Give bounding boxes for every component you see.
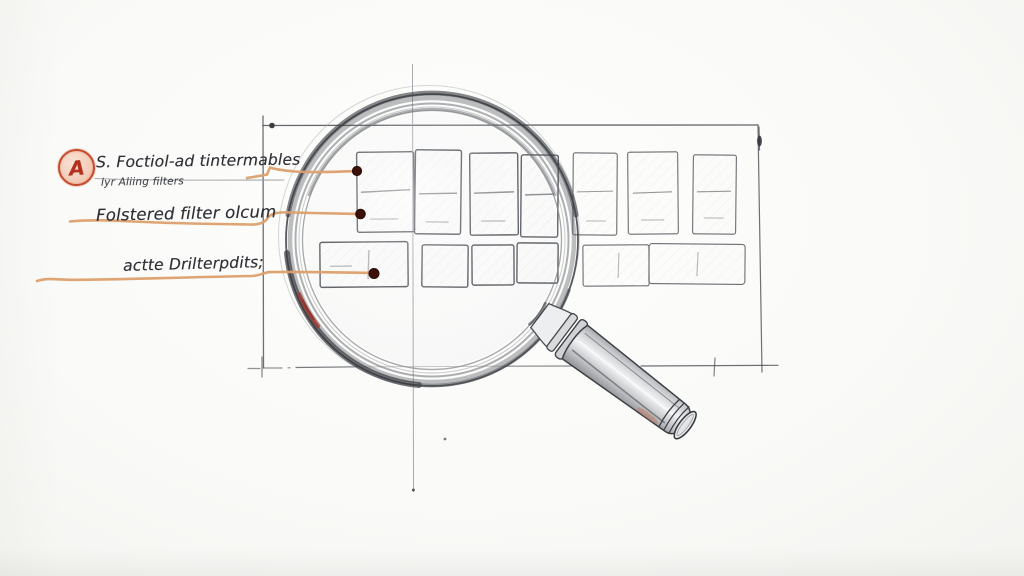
annotation-sublabel-1: lyr Aliing filters: [101, 175, 184, 188]
dimension-dot: [269, 123, 275, 129]
lens-glass: [305, 113, 559, 367]
anchor-dot-2: [356, 209, 366, 219]
annotation-label-3: actte Drilterpdits;: [123, 253, 264, 275]
frame-right-edge: [758, 125, 762, 372]
wireframe-grid-outside: [573, 152, 745, 286]
annotation-label-2: Folstered filter olcum: [96, 202, 277, 225]
frame-bottom-edge: [248, 368, 290, 369]
handle-barrel: [560, 323, 698, 441]
badge-letter: A: [68, 155, 85, 180]
annotation-label-1: S. Foctiol-ad tintermables: [96, 151, 301, 172]
anchor-dot-1: [352, 166, 361, 175]
sketch-drawing: [0, 0, 1024, 576]
paper-canvas: A S. Foctiol-ad tintermables lyr Aliing …: [0, 0, 1024, 576]
frame-bottom-tick-right: [714, 358, 715, 376]
frame-bottom-edge: [641, 365, 778, 366]
anchor-dot-3: [369, 269, 379, 279]
grid-card: [628, 152, 679, 234]
grid-card: [583, 245, 649, 286]
stray-pencil-dot: [444, 438, 447, 441]
magnifier-handle: [524, 295, 704, 447]
frame-bottom-edge: [296, 367, 358, 368]
grid-card: [649, 244, 745, 285]
grid-card: [693, 155, 737, 234]
dimension-arrowhead: [757, 136, 762, 147]
